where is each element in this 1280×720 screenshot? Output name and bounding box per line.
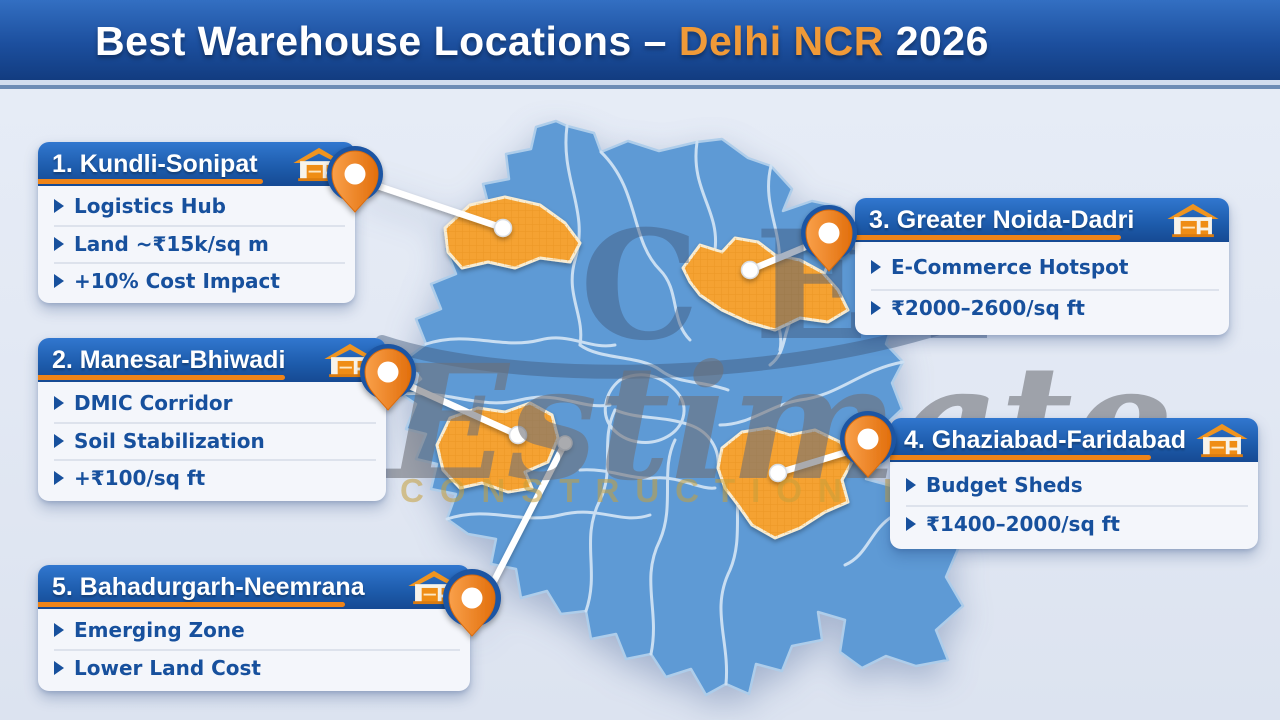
bullet-arrow-icon	[871, 301, 881, 315]
bullet-arrow-icon	[54, 623, 64, 637]
pin-greater-noida-dadri	[806, 210, 852, 271]
warehouse-icon	[1196, 422, 1248, 458]
card-title: 2. Manesar-Bhiwadi	[52, 346, 318, 375]
bullet-arrow-icon	[54, 396, 64, 410]
card-point-row: Lower Land Cost	[54, 649, 460, 685]
pin-disc	[840, 411, 896, 467]
warehouse-icon	[1167, 202, 1219, 238]
title-prefix: Best Warehouse Locations –	[95, 18, 679, 64]
warehouse-icon	[324, 342, 376, 378]
map-region-manesar-bhiwadi	[437, 403, 558, 492]
card-point-text: Logistics Hub	[74, 194, 226, 218]
bullet-arrow-icon	[906, 478, 916, 492]
map-region-ghaziabad-faridabad	[718, 428, 853, 538]
card-body: E-Commerce Hotspot₹2000–2600/sq ft	[855, 242, 1229, 335]
anchor-dots	[495, 220, 787, 482]
card-point-row: Land ~₹15k/sq m	[54, 225, 345, 261]
page-title: Best Warehouse Locations – Delhi NCR 202…	[95, 0, 989, 80]
map-region-greater-noida-dadri	[683, 238, 848, 330]
card-title: 4. Ghaziabad-Faridabad	[904, 426, 1190, 455]
district-borders	[401, 126, 903, 684]
card-title: 3. Greater Noida-Dadri	[869, 206, 1161, 235]
card-header: 1. Kundli-Sonipat	[38, 142, 355, 186]
card-point-text: DMIC Corridor	[74, 391, 233, 415]
header-underline	[855, 235, 1121, 240]
card-point-text: Lower Land Cost	[74, 656, 261, 680]
card-body: Emerging ZoneLower Land Cost	[38, 609, 470, 691]
card-point-row: +₹100/sq ft	[54, 459, 376, 495]
card-point-text: +₹100/sq ft	[74, 466, 205, 490]
header-underline	[38, 375, 285, 380]
infographic-canvas: CEI Estimate CONSTRUCTION INC Best Wareh…	[0, 0, 1280, 720]
header-underline	[38, 179, 263, 184]
warehouse-icon	[408, 569, 460, 605]
bullet-arrow-icon	[54, 434, 64, 448]
pin-ghaziabad-faridabad	[845, 416, 891, 477]
card-point-text: Emerging Zone	[74, 618, 245, 642]
card-manesar-bhiwadi: 2. Manesar-Bhiwadi DMIC CorridorSoil Sta…	[38, 338, 386, 501]
card-header: 2. Manesar-Bhiwadi	[38, 338, 386, 382]
card-header: 4. Ghaziabad-Faridabad	[890, 418, 1258, 462]
header-underline	[890, 455, 1151, 460]
bullet-arrow-icon	[906, 517, 916, 531]
bullet-arrow-icon	[54, 274, 64, 288]
card-point-row: Budget Sheds	[906, 468, 1248, 502]
pin-disc	[801, 205, 857, 261]
card-point-text: +10% Cost Impact	[74, 269, 280, 293]
bullet-arrow-icon	[54, 237, 64, 251]
title-bar-strip-dark	[0, 85, 1280, 89]
card-title: 1. Kundli-Sonipat	[52, 150, 287, 179]
card-point-row: Soil Stabilization	[54, 422, 376, 458]
card-point-row: ₹1400–2000/sq ft	[906, 505, 1248, 541]
bullet-arrow-icon	[871, 260, 881, 274]
card-point-text: Soil Stabilization	[74, 429, 265, 453]
card-greater-noida-dadri: 3. Greater Noida-Dadri E-Commerce Hotspo…	[855, 198, 1229, 335]
bullet-arrow-icon	[54, 661, 64, 675]
card-point-row: Logistics Hub	[54, 189, 345, 223]
card-body: Budget Sheds₹1400–2000/sq ft	[890, 462, 1258, 549]
card-body: Logistics HubLand ~₹15k/sq m+10% Cost Im…	[38, 186, 355, 303]
card-header: 5. Bahadurgarh-Neemrana	[38, 565, 470, 609]
title-suffix: 2026	[884, 18, 989, 64]
card-point-text: Budget Sheds	[926, 473, 1083, 497]
card-point-row: E-Commerce Hotspot	[871, 250, 1219, 284]
card-point-text: Land ~₹15k/sq m	[74, 232, 269, 256]
card-point-row: ₹2000–2600/sq ft	[871, 289, 1219, 325]
bullet-arrow-icon	[54, 471, 64, 485]
title-bar: Best Warehouse Locations – Delhi NCR 202…	[0, 0, 1280, 80]
bullet-arrow-icon	[54, 199, 64, 213]
card-bahadurgarh-neemrana: 5. Bahadurgarh-Neemrana Emerging ZoneLow…	[38, 565, 470, 691]
header-underline	[38, 602, 345, 607]
card-point-row: +10% Cost Impact	[54, 262, 345, 298]
card-ghaziabad-faridabad: 4. Ghaziabad-Faridabad Budget Sheds₹1400…	[890, 418, 1258, 549]
warehouse-icon	[293, 146, 345, 182]
title-highlight: Delhi NCR	[679, 18, 884, 64]
card-title: 5. Bahadurgarh-Neemrana	[52, 573, 402, 602]
card-header: 3. Greater Noida-Dadri	[855, 198, 1229, 242]
map-region-kundli-sonipat	[445, 197, 580, 268]
card-point-text: ₹2000–2600/sq ft	[891, 296, 1085, 320]
card-body: DMIC CorridorSoil Stabilization+₹100/sq …	[38, 382, 386, 501]
card-kundli-sonipat: 1. Kundli-Sonipat Logistics HubLand ~₹15…	[38, 142, 355, 303]
card-point-row: Emerging Zone	[54, 613, 460, 647]
card-point-text: ₹1400–2000/sq ft	[926, 512, 1120, 536]
card-point-text: E-Commerce Hotspot	[891, 255, 1128, 279]
card-point-row: DMIC Corridor	[54, 386, 376, 420]
connector-lines	[360, 180, 860, 622]
